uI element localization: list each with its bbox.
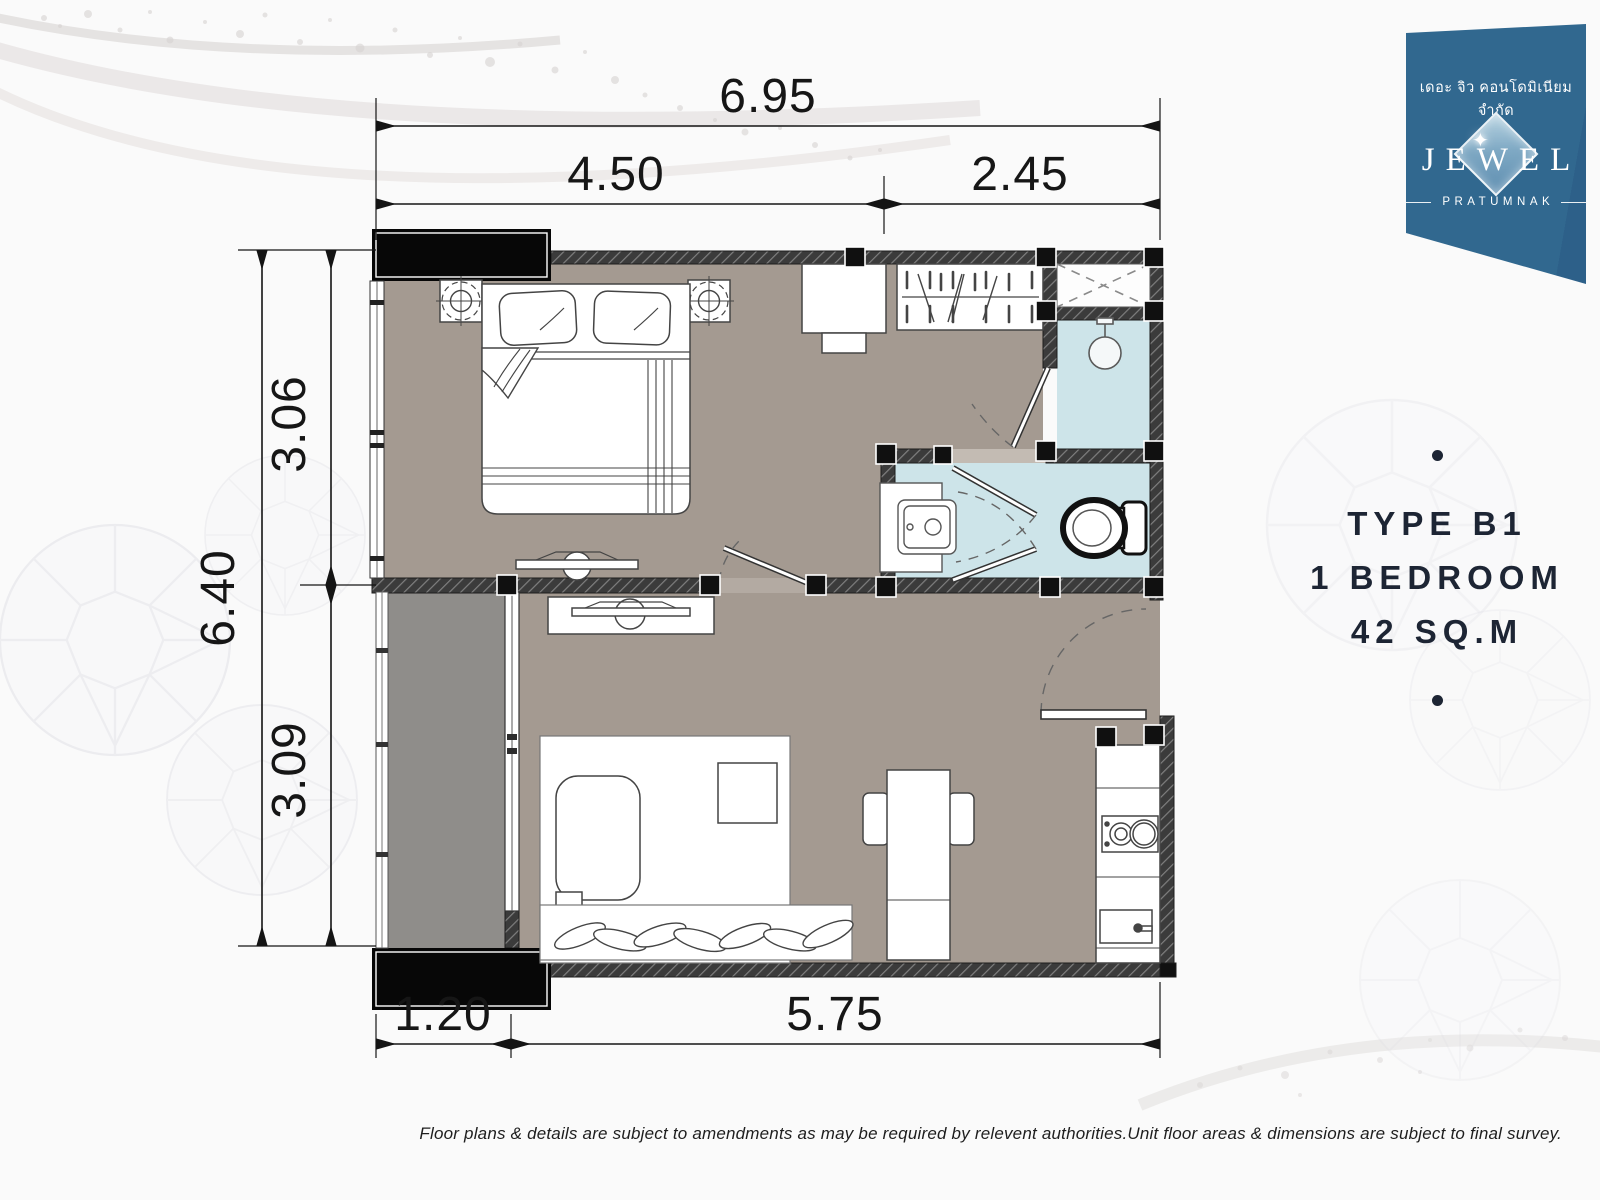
tv-cabinet-living [548,597,714,634]
dim-top-total: 6.95 [719,70,816,123]
dash-left [1406,202,1431,203]
wall-divider-left [372,578,716,593]
wall-bottom-corner [1160,963,1176,977]
bedroom-window [370,281,384,578]
balcony-railing [376,592,388,948]
dim-bottom-right: 5.75 [786,988,883,1041]
dim-left-lower: 3.09 [263,721,316,818]
bed [482,284,690,514]
unit-info: TYPE B1 1 BEDROOM 42 SQ.M [1272,450,1600,706]
unit-area: 42 SQ.M [1272,605,1600,659]
dim-top-right: 2.45 [971,148,1068,201]
balcony-sliding-door [505,592,519,911]
dim-left-total: 6.40 [192,549,245,646]
brand-name: JEWEL [1406,142,1586,179]
brand-subtitle: PRATUMNAK [1438,196,1554,208]
balcony-floor [388,592,505,948]
toilet [1063,500,1146,556]
floor-plan-page: 6.95 4.50 2.45 6.40 3.06 3.09 1.20 5.75 … [0,0,1600,1200]
wall-right-lower [1160,716,1174,963]
nightstand-right [684,276,734,326]
unit-type: TYPE B1 [1272,497,1600,551]
wardrobe [897,264,1043,330]
dim-left-upper: 3.06 [263,375,316,472]
wall-balcony-stub [505,911,519,948]
bathroom-door-threshold [948,449,1046,463]
wall-bottom [540,963,1160,977]
ac-ledge [1057,264,1150,307]
nightstand-left [436,276,486,326]
dash-right [1561,202,1586,203]
bullet-dot-top [1432,450,1443,461]
wall-divider-right [812,578,1163,593]
dim-top-left: 4.50 [567,148,664,201]
kitchen-sink-icon [1100,910,1152,943]
brand-subtitle-row: PRATUMNAK [1406,196,1586,208]
dim-bottom-left: 1.20 [394,988,491,1041]
disclaimer-text: Floor plans & details are subject to ame… [419,1124,1562,1144]
hob-icon [1102,816,1158,852]
kitchen-counter [1096,745,1160,963]
unit-bedroom: 1 BEDROOM [1272,551,1600,605]
bullet-dot-bottom [1432,695,1443,706]
